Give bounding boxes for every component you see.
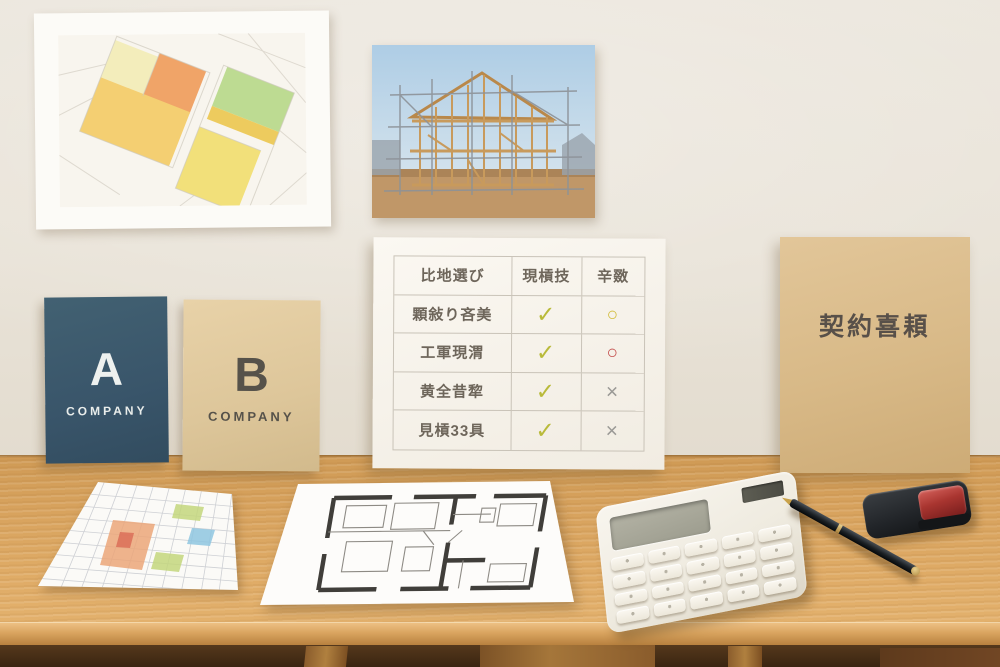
- contract-folder-title: 契約喜頛: [819, 307, 931, 343]
- table-row: 見槓33具 ✓ ×: [393, 411, 643, 451]
- table-row: 顆敍り吝美 ✓ ○: [394, 295, 644, 335]
- calculator-key: [758, 524, 791, 543]
- table-row: 工軍現渭 ✓ ○: [394, 334, 644, 374]
- calculator-key: [690, 591, 723, 610]
- row-label: 黄全昔犂: [394, 372, 512, 410]
- header-cell: 辛敪: [582, 257, 645, 295]
- contract-documents-folder: 契約喜頛: [780, 237, 970, 473]
- desk-leg: [304, 646, 348, 667]
- calculator-key: [764, 577, 797, 596]
- zoning-map-poster: [34, 10, 331, 229]
- calculator-key: [647, 545, 680, 564]
- calculator-key: [760, 541, 793, 560]
- company-b-brochure: B COMPANY: [182, 300, 320, 472]
- company-a-brochure: A COMPANY: [44, 296, 169, 463]
- chair-panel: [480, 645, 655, 667]
- construction-photo-image: [372, 45, 595, 218]
- row-label: 顆敍り吝美: [394, 295, 512, 333]
- site-plan-paper: [18, 468, 258, 618]
- calculator-key: [684, 538, 717, 557]
- calculator-key: [616, 605, 649, 624]
- company-b-letter: B: [234, 347, 269, 402]
- circle-mark-icon: ○: [606, 344, 619, 363]
- zoning-map-image: [58, 33, 307, 208]
- header-cell: 現槓技: [512, 257, 582, 295]
- calculator-key: [611, 552, 644, 571]
- desk-leg: [880, 648, 1000, 667]
- calculator-key: [651, 581, 684, 600]
- calculator-key: [721, 531, 754, 550]
- table-row: 黄全昔犂 ✓ ×: [394, 372, 644, 412]
- calculator-key: [612, 570, 645, 589]
- calculator-key: [725, 566, 758, 585]
- floor-plan-paper: [246, 474, 581, 621]
- company-b-label: COMPANY: [208, 408, 295, 424]
- check-mark-icon: ✓: [536, 380, 556, 403]
- cross-mark-icon: ×: [606, 421, 619, 442]
- table-header-row: 比地選び 現槓技 辛敪: [394, 256, 644, 296]
- circle-mark-icon: ○: [607, 305, 620, 324]
- desk-front-edge: [0, 623, 1000, 645]
- calculator-key: [688, 573, 721, 592]
- header-cell: 比地選び: [394, 256, 512, 294]
- construction-photo: [372, 45, 595, 218]
- company-a-letter: A: [89, 342, 123, 396]
- check-mark-icon: ✓: [535, 419, 555, 442]
- row-label: 工軍現渭: [394, 334, 512, 372]
- calculator-key: [727, 584, 760, 603]
- calculator-key: [723, 548, 756, 567]
- check-mark-icon: ✓: [536, 342, 556, 365]
- calculator-solar-panel: [741, 480, 784, 503]
- cross-mark-icon: ×: [606, 382, 619, 403]
- site-plan-image: [18, 468, 258, 613]
- row-label: 見槓33具: [393, 411, 511, 450]
- check-mark-icon: ✓: [536, 303, 556, 326]
- comparison-table: 比地選び 現槓技 辛敪 顆敍り吝美 ✓ ○ 工軍現渭 ✓ ○ 黄全昔犂 ✓ × …: [392, 255, 645, 451]
- pen-gold-ring: [835, 524, 843, 534]
- floor-plan-image: [246, 474, 581, 616]
- desk-leg: [728, 646, 762, 667]
- comparison-board: 比地選び 現槓技 辛敪 顆敍り吝美 ✓ ○ 工軍現渭 ✓ ○ 黄全昔犂 ✓ × …: [372, 237, 665, 470]
- calculator-key: [762, 559, 795, 578]
- calculator-key: [653, 598, 686, 617]
- desk-scene: 比地選び 現槓技 辛敪 顆敍り吝美 ✓ ○ 工軍現渭 ✓ ○ 黄全昔犂 ✓ × …: [0, 0, 1000, 667]
- calculator-key: [649, 563, 682, 582]
- calculator-key: [614, 588, 647, 607]
- calculator-key: [686, 556, 719, 575]
- company-a-label: COMPANY: [66, 404, 148, 419]
